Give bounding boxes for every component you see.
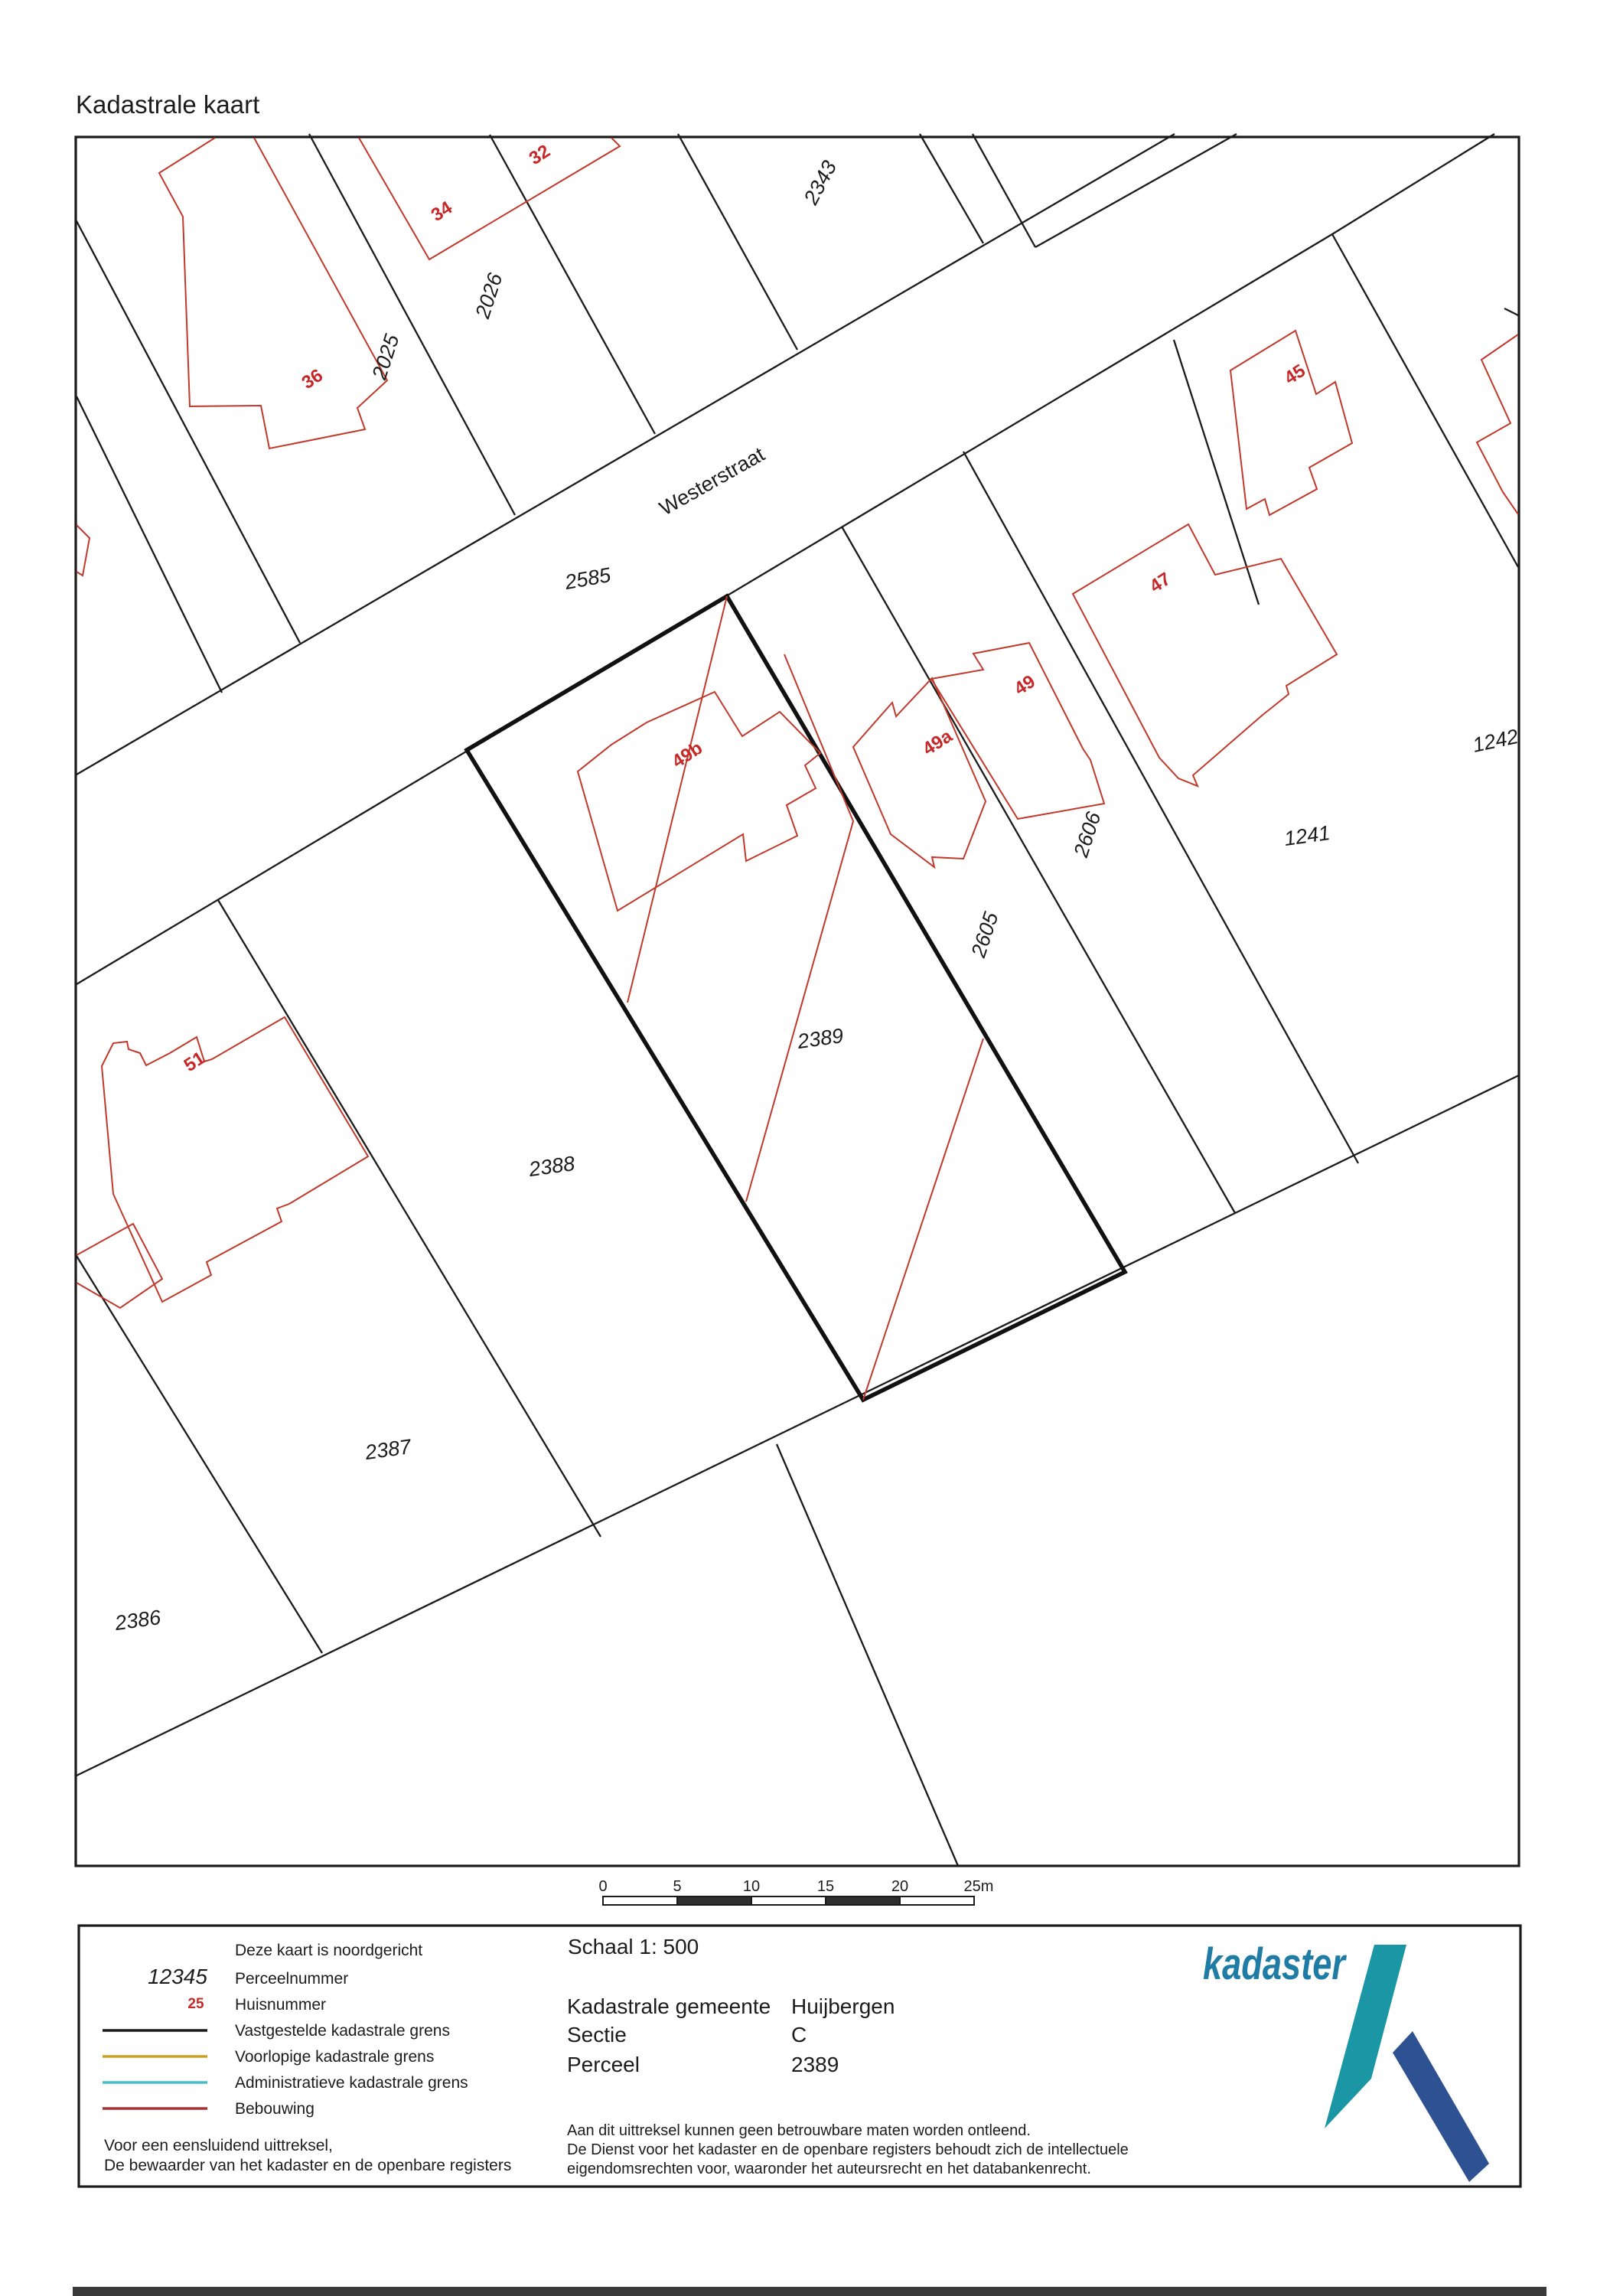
svg-text:2389: 2389 [791, 2053, 839, 2076]
svg-text:Voor een eensluidend uittrekse: Voor een eensluidend uittreksel, [104, 2137, 333, 2154]
svg-text:Deze kaart is noordgericht: Deze kaart is noordgericht [235, 1942, 422, 1959]
svg-text:15: 15 [817, 1878, 834, 1895]
svg-text:Bebouwing: Bebouwing [235, 2100, 314, 2118]
svg-text:5: 5 [673, 1878, 681, 1895]
svg-text:10: 10 [743, 1878, 760, 1895]
svg-text:25m: 25m [964, 1878, 994, 1895]
svg-text:kadaster: kadaster [1203, 1939, 1348, 1989]
svg-text:De Dienst voor het kadaster en: De Dienst voor het kadaster en de openba… [567, 2141, 1129, 2158]
svg-text:Schaal 1: 500: Schaal 1: 500 [568, 1935, 699, 1958]
svg-text:Kadastrale kaart: Kadastrale kaart [76, 90, 259, 119]
svg-text:Huijbergen: Huijbergen [791, 1994, 895, 2018]
svg-text:Voorlopige kadastrale grens: Voorlopige kadastrale grens [235, 2048, 434, 2066]
svg-text:Sectie: Sectie [567, 2023, 627, 2047]
svg-text:C: C [791, 2023, 807, 2047]
svg-text:eigendomsrechten voor, waarond: eigendomsrechten voor, waaronder het aut… [567, 2161, 1091, 2177]
svg-text:Huisnummer: Huisnummer [235, 1996, 326, 2014]
svg-text:De bewaarder van het kadaster: De bewaarder van het kadaster en de open… [104, 2157, 511, 2174]
svg-text:Vastgestelde kadastrale grens: Vastgestelde kadastrale grens [235, 2022, 450, 2040]
svg-text:Aan dit uittreksel kunnen geen: Aan dit uittreksel kunnen geen betrouwba… [567, 2122, 1031, 2139]
svg-text:0: 0 [598, 1878, 607, 1895]
svg-text:25: 25 [187, 1996, 204, 2012]
svg-text:Perceelnummer: Perceelnummer [235, 1970, 348, 1988]
svg-text:Perceel: Perceel [567, 2053, 640, 2076]
svg-text:Kadastrale gemeente: Kadastrale gemeente [567, 1994, 771, 2018]
svg-text:12345: 12345 [148, 1965, 207, 1988]
svg-text:Administratieve kadastrale gre: Administratieve kadastrale grens [235, 2074, 468, 2092]
svg-text:20: 20 [891, 1878, 908, 1895]
